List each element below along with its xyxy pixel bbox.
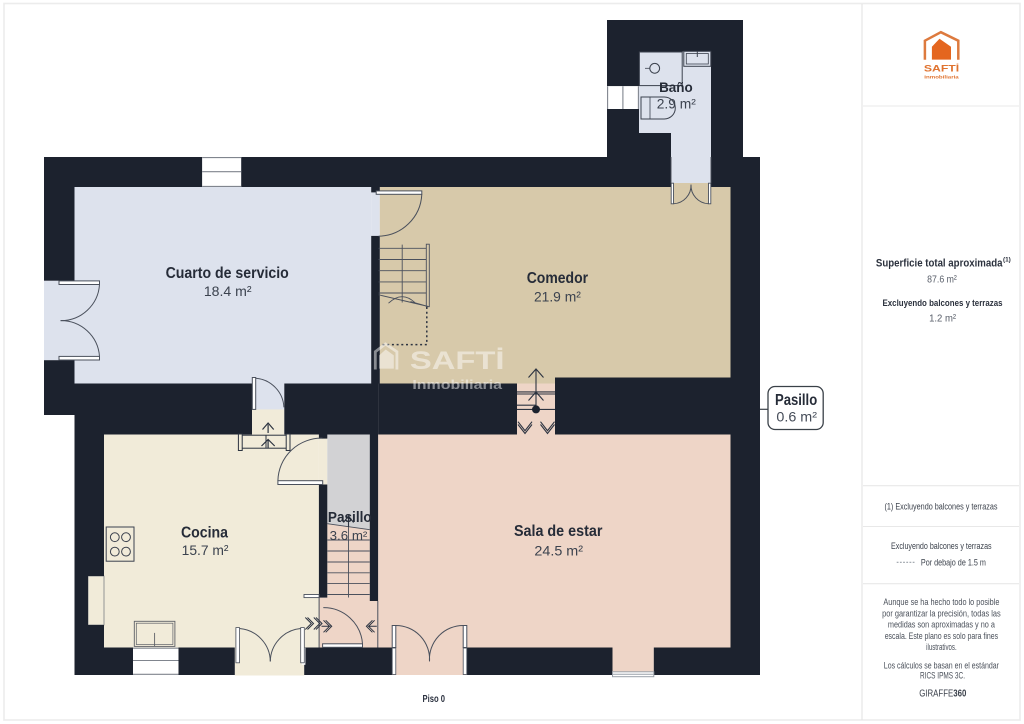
svg-text:GIRAFFE360: GIRAFFE360 <box>919 688 967 699</box>
svg-text:Excluyendo balcones y terrazas: Excluyendo balcones y terrazas <box>891 541 992 551</box>
svg-text:1.2 m²: 1.2 m² <box>929 314 957 325</box>
svg-text:Comedor: Comedor <box>527 270 588 287</box>
svg-text:Pasillo: Pasillo <box>775 392 817 409</box>
svg-text:0.6 m²: 0.6 m² <box>776 410 817 425</box>
svg-text:18.4 m²: 18.4 m² <box>204 283 252 299</box>
svg-text:87.6 m²: 87.6 m² <box>927 275 957 286</box>
svg-text:2.9 m²: 2.9 m² <box>657 97 697 112</box>
svg-text:RICS IPMS 3C.: RICS IPMS 3C. <box>920 671 965 681</box>
svg-text:Aunque se ha hecho todo lo pos: Aunque se ha hecho todo lo posible <box>883 597 999 607</box>
svg-text:Pasillo: Pasillo <box>328 509 372 526</box>
svg-text:Excluyendo balcones y terrazas: Excluyendo balcones y terrazas <box>883 298 1003 308</box>
svg-text:por garantizar la precisión, t: por garantizar la precisión, todas las <box>882 608 1001 618</box>
svg-text:3.6 m²: 3.6 m² <box>330 528 368 543</box>
svg-text:ilustrativos.: ilustrativos. <box>926 642 957 652</box>
svg-text:SAFTİ: SAFTİ <box>924 64 959 74</box>
svg-text:Cocina: Cocina <box>181 525 228 542</box>
svg-text:Piso 0: Piso 0 <box>423 693 446 705</box>
svg-text:Inmobiliaria: Inmobiliaria <box>412 377 503 392</box>
svg-text:21.9 m²: 21.9 m² <box>534 288 581 304</box>
svg-text:SAFTİ: SAFTİ <box>410 347 505 375</box>
svg-text:Por debajo de 1.5 m: Por debajo de 1.5 m <box>921 558 986 568</box>
svg-text:(1): (1) <box>1003 257 1011 264</box>
svg-text:15.7 m²: 15.7 m² <box>182 542 229 558</box>
svg-text:24.5 m²: 24.5 m² <box>534 543 583 559</box>
svg-text:medidas son aproximadas y no a: medidas son aproximadas y no a <box>888 620 995 630</box>
svg-text:Baño: Baño <box>659 79 693 95</box>
svg-text:Los cálculos se basan en el es: Los cálculos se basan en el estándar <box>884 661 999 671</box>
svg-text:(1) Excluyendo balcones y terr: (1) Excluyendo balcones y terrazas <box>885 501 998 511</box>
svg-text:escala. Este plano es solo par: escala. Este plano es solo para fines <box>885 631 999 641</box>
svg-text:Inmobiliaria: Inmobiliaria <box>924 75 959 81</box>
svg-text:Sala de estar: Sala de estar <box>514 523 603 540</box>
svg-text:Superficie total aproximada: Superficie total aproximada <box>876 258 1003 270</box>
svg-text:Cuarto de servicio: Cuarto de servicio <box>166 265 290 282</box>
